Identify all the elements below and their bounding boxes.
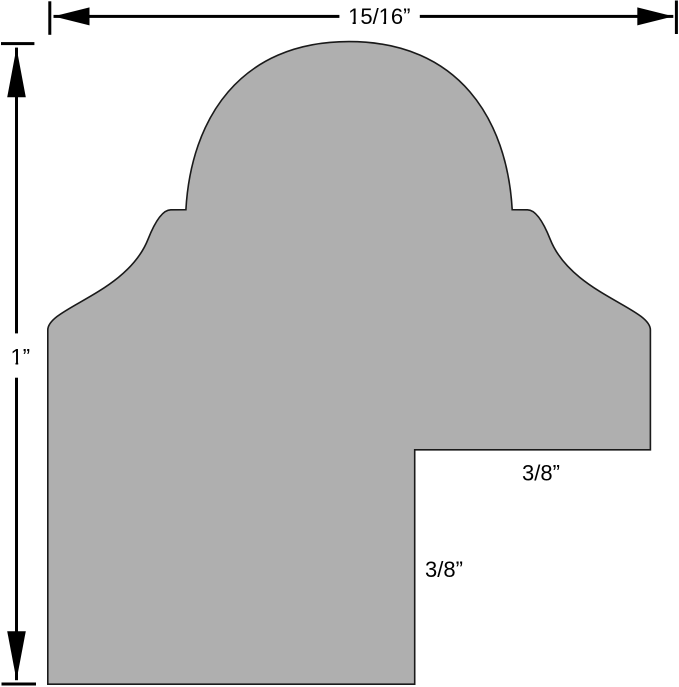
svg-text:3/8”: 3/8” [425,557,463,582]
svg-text:15/16”: 15/16” [348,4,410,29]
svg-text:3/8”: 3/8” [522,460,560,485]
svg-text:1”: 1” [11,345,31,370]
